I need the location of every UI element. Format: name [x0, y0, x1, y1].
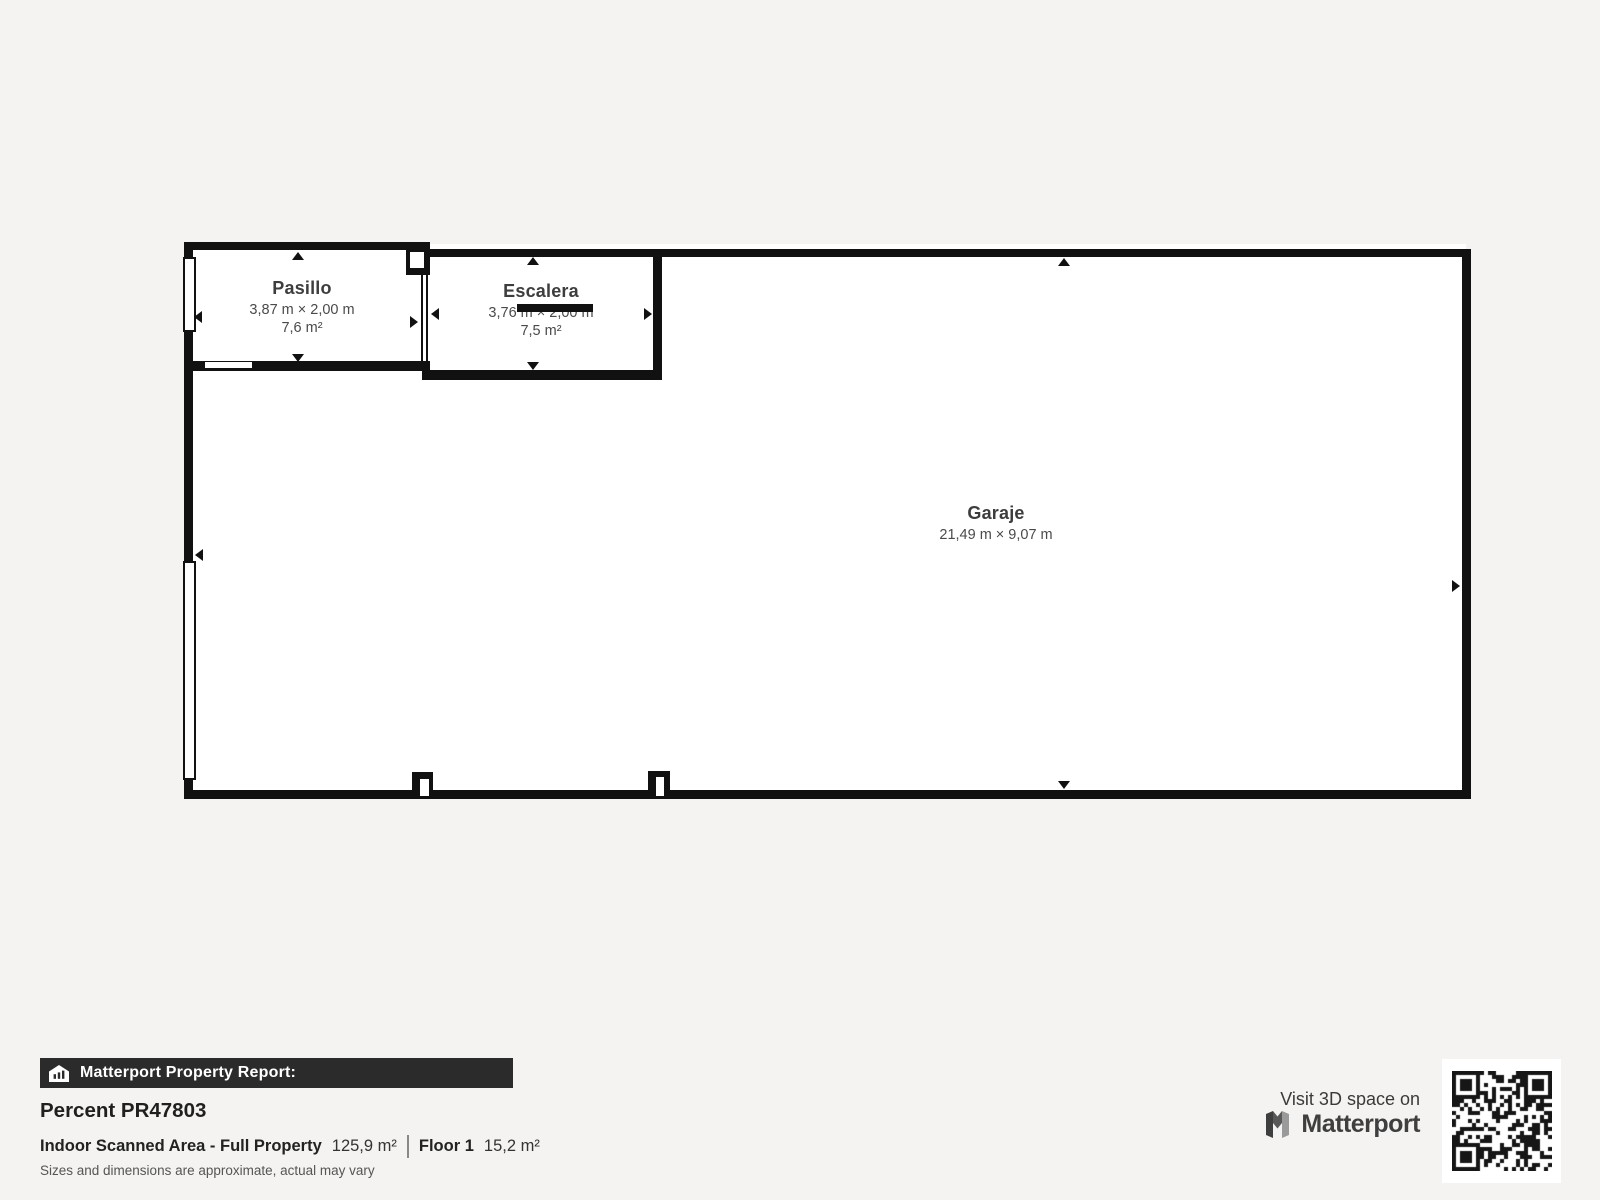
area-stats-line: Indoor Scanned Area - Full Property 125,…	[40, 1135, 540, 1158]
area-label: Indoor Scanned Area - Full Property	[40, 1137, 322, 1156]
floor-label: Floor 1	[419, 1137, 474, 1156]
matterport-m-icon	[1263, 1110, 1292, 1139]
room-name: Pasillo	[182, 278, 422, 298]
room-name: Escalera	[421, 281, 661, 301]
dimension-arrow-down-icon	[527, 362, 539, 370]
room-name: Garaje	[876, 503, 1116, 523]
stats-divider	[407, 1135, 409, 1158]
matterport-wordmark: Matterport	[1301, 1110, 1420, 1139]
room-label-pasillo: Pasillo 3,87 m × 2,00 m 7,6 m²	[182, 278, 422, 337]
qr-card	[1442, 1059, 1561, 1183]
divider-notch	[410, 252, 424, 268]
room-dimensions: 21,49 m × 9,07 m	[876, 526, 1116, 544]
matterport-logo: Matterport	[1263, 1110, 1420, 1139]
qr-code	[1452, 1071, 1552, 1171]
dimension-arrow-down-icon	[292, 354, 304, 362]
stair-symbol	[517, 304, 593, 312]
window-garage-left	[183, 561, 196, 780]
door-opening-pasillo	[205, 362, 252, 368]
room-area: 7,5 m²	[421, 322, 661, 340]
wall-escalera-bottom	[422, 370, 662, 380]
dimension-arrow-up-icon	[527, 257, 539, 265]
dimension-arrow-down-icon	[1058, 781, 1070, 789]
wall-top-pasillo	[184, 242, 430, 250]
dimension-arrow-right-icon	[1452, 580, 1460, 592]
floor-value: 15,2 m²	[484, 1137, 540, 1156]
room-area: 7,6 m²	[182, 319, 422, 337]
wall-notch-b-gap	[656, 777, 664, 796]
disclaimer-text: Sizes and dimensions are approximate, ac…	[40, 1163, 375, 1178]
dimension-arrow-up-icon	[292, 252, 304, 260]
wall-notch-a-gap	[420, 779, 429, 796]
room-dimensions: 3,87 m × 2,00 m	[182, 301, 422, 319]
property-name: Percent PR47803	[40, 1099, 206, 1123]
area-value: 125,9 m²	[332, 1137, 397, 1156]
dimension-arrow-left-icon	[195, 549, 203, 561]
property-report-page: Pasillo 3,87 m × 2,00 m 7,6 m² Escalera …	[0, 0, 1600, 1200]
wall-bottom	[184, 790, 1471, 799]
report-header-bar: Matterport Property Report:	[40, 1058, 513, 1088]
report-bar-label: Matterport Property Report:	[80, 1064, 296, 1082]
dimension-arrow-up-icon	[1058, 258, 1070, 266]
room-label-garaje: Garaje 21,49 m × 9,07 m	[876, 503, 1116, 544]
wall-top-main	[422, 249, 1471, 257]
visit-3d-space-text: Visit 3D space on	[1280, 1089, 1420, 1110]
house-chart-icon	[49, 1065, 69, 1082]
wall-right	[1462, 249, 1471, 799]
